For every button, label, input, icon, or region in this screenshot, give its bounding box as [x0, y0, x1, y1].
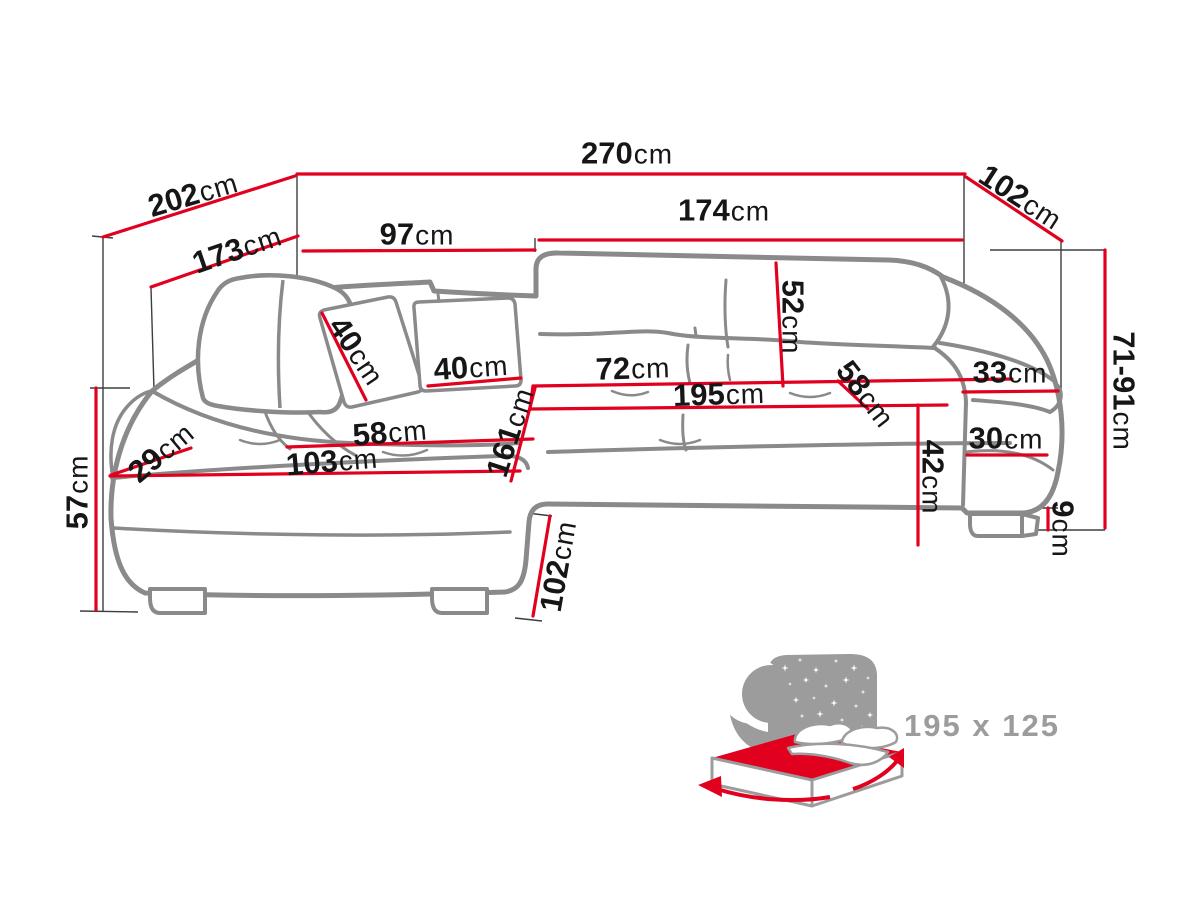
dim-label-103: 103cm	[285, 442, 379, 481]
sofa-dimension-diagram: 270cm 202cm 102cm 173cm 97cm 174cm 52cm …	[0, 0, 1200, 900]
dim-label-40-right: 40cm	[433, 349, 510, 385]
dim-label-72: 72cm	[595, 351, 671, 385]
sleeping-function-icon	[698, 654, 904, 806]
dim-label-30: 30cm	[969, 423, 1044, 454]
dim-label-9: 9cm	[1048, 500, 1079, 558]
dim-label-57: 57cm	[62, 455, 93, 530]
dim-label-42: 42cm	[918, 440, 949, 515]
bed-size-label: 195 x 125	[904, 708, 1060, 744]
dim-label-52: 52cm	[778, 280, 809, 355]
dim-label-33: 33cm	[973, 357, 1048, 388]
dim-label-97: 97cm	[380, 219, 455, 250]
dim-label-174: 174cm	[678, 195, 770, 226]
dim-label-71-91: 71-91cm	[1109, 331, 1140, 451]
dim-label-270: 270cm	[581, 138, 673, 169]
dim-label-195: 195cm	[672, 377, 765, 411]
